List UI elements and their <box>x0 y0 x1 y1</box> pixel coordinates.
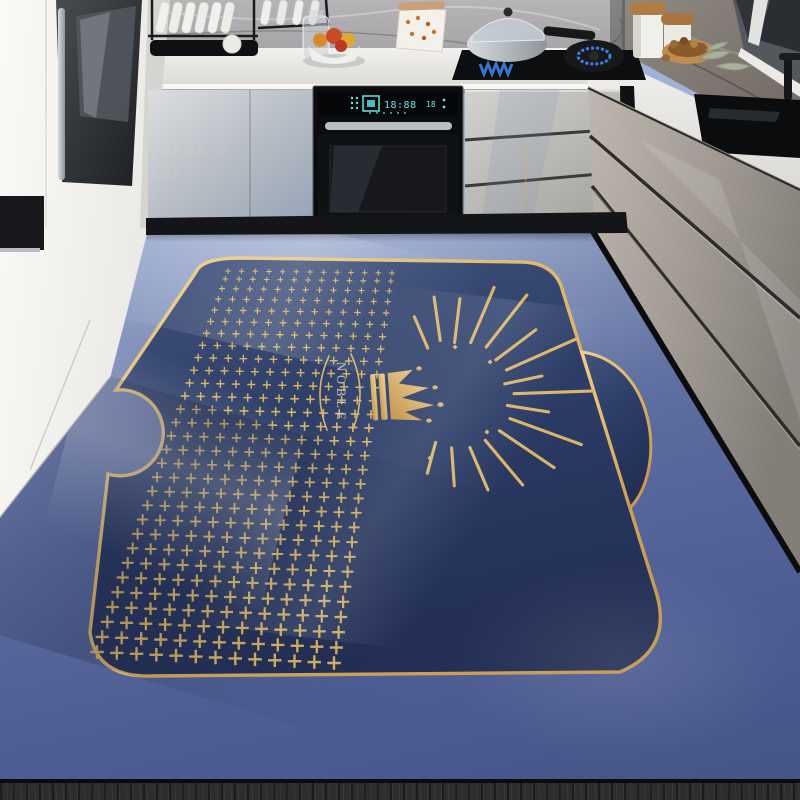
oven-display-temp: 18 <box>426 100 436 109</box>
built-in-oven: 18:88 18 <box>313 86 463 230</box>
kitchen-scene: 18:88 18 <box>0 0 800 800</box>
oven-display-time: 18:88 <box>384 100 417 111</box>
gas-burner <box>564 40 624 72</box>
lower-left-appliance <box>0 196 44 252</box>
canister-jar <box>630 2 666 58</box>
appliance-handle <box>58 8 65 180</box>
oven-handle <box>325 122 452 130</box>
wood-lid <box>630 2 666 15</box>
drip-tray <box>150 40 258 56</box>
garlic-bulb <box>223 35 241 53</box>
wood-lid <box>661 13 694 25</box>
snack-bag <box>396 1 446 52</box>
tall-appliance <box>56 0 142 186</box>
lid-knob <box>504 8 513 17</box>
kitchen-mat-product-photo: NOBLE <box>0 0 800 800</box>
